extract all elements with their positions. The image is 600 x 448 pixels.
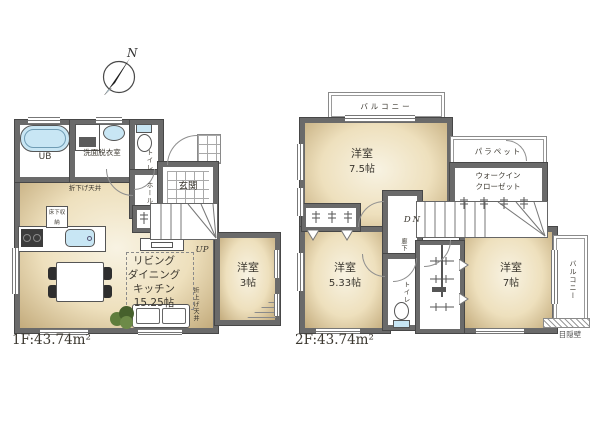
room-name: 洋室 [330, 146, 394, 162]
room-name: 洋室 [484, 260, 538, 276]
sofa-cushion [162, 308, 186, 324]
entrance-label: 玄関 [170, 181, 206, 192]
bathtub-inner [24, 129, 66, 148]
dining-table-icon [56, 262, 104, 302]
dropped-ceiling-label: 折下げ天井 [60, 185, 110, 193]
western-5-33-label: 洋室 5.33帖 [312, 260, 378, 292]
raised-ceiling-label: 折上げ天井 [189, 282, 199, 326]
bath-label: UB [28, 152, 62, 163]
corridor-label: 廊下 [395, 232, 407, 258]
wic-line: ウォークイン [452, 170, 544, 181]
window [274, 250, 280, 278]
window [138, 329, 182, 335]
room-name: 洋室 [312, 260, 378, 276]
balcony-top-label: バルコニー [329, 102, 444, 111]
window [274, 294, 280, 316]
faucet [87, 236, 92, 241]
burner [23, 234, 31, 242]
toilet-2f-label: トイレ [397, 278, 409, 306]
tv-icon [151, 242, 173, 248]
window [551, 250, 558, 304]
door-direction-icon [307, 230, 319, 241]
ldk-line: キッチン [110, 282, 198, 296]
window [476, 328, 524, 334]
stove-icon [21, 229, 43, 247]
room-size: 5.33帖 [312, 276, 378, 292]
ldk-size: 15.25帖 [110, 296, 198, 310]
plant-leaf [120, 316, 133, 329]
window [297, 144, 304, 180]
window [297, 253, 304, 291]
toilet-1f-label: トイレ [140, 146, 152, 174]
floor2-area-label: 2F:43.74m² [295, 332, 425, 348]
room-size: 3帖 [224, 276, 272, 292]
window [345, 115, 415, 122]
sofa-cushion [136, 308, 160, 324]
western-3-label: 洋室 3帖 [224, 260, 272, 292]
washer-drum [79, 137, 96, 147]
hanger-icon [137, 211, 151, 225]
floor-storage-label: 床下収納 [47, 209, 67, 229]
balcony-right-label: バルコニー [565, 248, 577, 312]
floor-storage-box: 床下収納 [46, 206, 68, 228]
western-7-5-label: 洋室 7.5帖 [330, 146, 394, 178]
window [297, 188, 304, 216]
wic-line: クローゼット [452, 181, 544, 192]
parapet-label: パラペット [451, 147, 546, 156]
window [12, 248, 19, 294]
western-7-label: 洋室 7帖 [484, 260, 538, 292]
closet-5-33 [302, 204, 360, 231]
room-name: 洋室 [224, 260, 272, 276]
privacy-wall-label: 目隠壁 [548, 330, 592, 339]
ldk-line: ダイニング [110, 268, 198, 282]
stairs-down-label: DN [400, 215, 426, 225]
door-direction-icon [459, 259, 469, 271]
ldk-line: リビング [110, 254, 198, 268]
walk-in-closet-label: ウォークイン クローゼット [452, 170, 544, 192]
washroom-label: 洗面脱衣室 [70, 148, 134, 157]
washbasin-icon [103, 125, 125, 141]
toilet-tank-1f [136, 124, 152, 133]
stairs-up-label: UP [191, 245, 213, 255]
washer-icon [75, 124, 100, 151]
hanger-row-icon [308, 210, 356, 224]
balcony-right: バルコニー [553, 235, 588, 323]
floor1-area-label: 1F:43.74m² [12, 332, 142, 348]
entrance-porch [197, 134, 221, 164]
privacy-wall [543, 318, 590, 328]
window [96, 117, 122, 124]
ldk-label: リビング ダイニング キッチン 15.25帖 [110, 254, 198, 310]
door-direction-icon [459, 293, 469, 305]
door-direction-icon [341, 230, 353, 241]
stairs-up-icon [150, 203, 218, 240]
room-size: 7.5帖 [330, 162, 394, 178]
burner [33, 234, 41, 242]
parapet-balcony: パラペット [450, 136, 547, 166]
hanger-row-icon [456, 196, 540, 210]
toilet-tank-2f [393, 320, 410, 328]
window [28, 117, 60, 124]
bathtub-icon [20, 125, 70, 152]
room-size: 7帖 [484, 276, 538, 292]
floor-plan-image: N [0, 0, 600, 448]
hall-label: ホール [140, 176, 152, 210]
kitchen-sink-icon [65, 229, 95, 247]
